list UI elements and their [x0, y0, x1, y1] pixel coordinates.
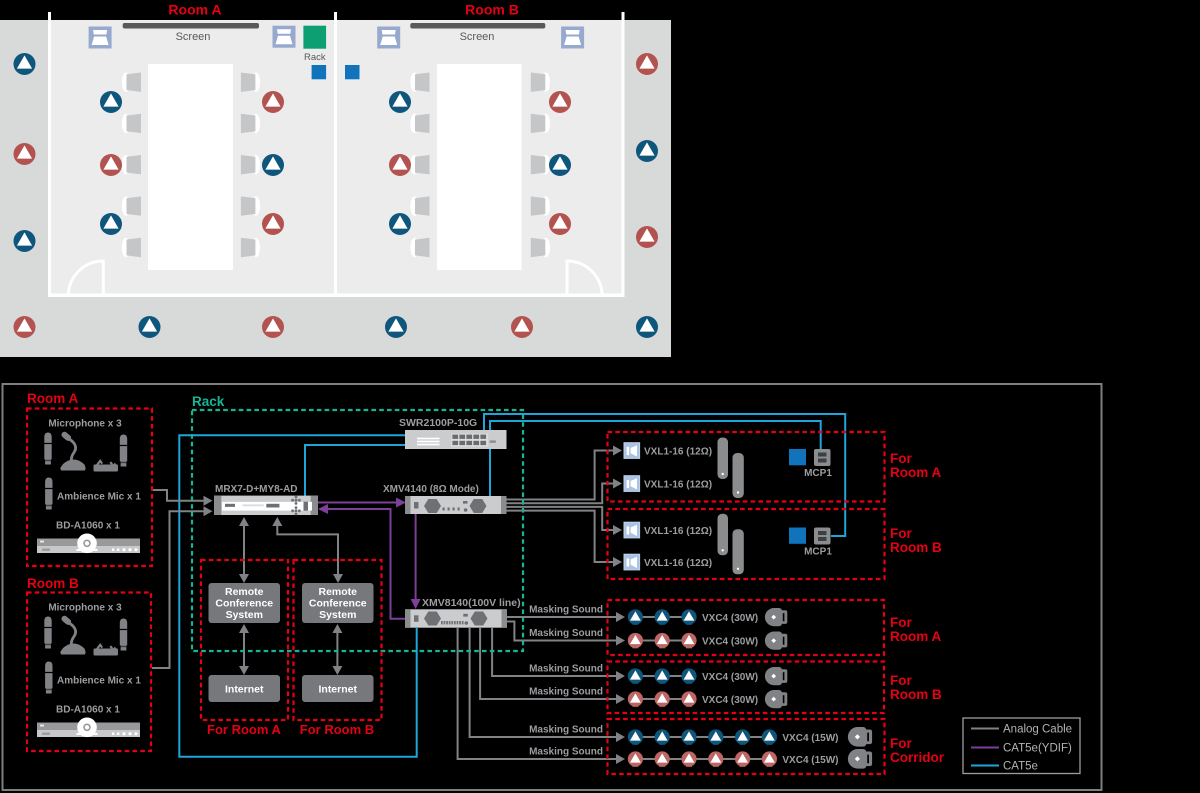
svg-text:VXC4 (15W): VXC4 (15W) [782, 733, 838, 744]
svg-text:Remote: Remote [225, 586, 264, 598]
svg-text:Room A: Room A [27, 391, 78, 406]
svg-text:MCP1: MCP1 [804, 468, 832, 479]
svg-text:MCP1: MCP1 [804, 547, 832, 558]
svg-text:Room A: Room A [890, 465, 941, 480]
svg-text:Masking Sound: Masking Sound [529, 687, 603, 698]
svg-text:VXC4 (30W): VXC4 (30W) [702, 613, 758, 624]
svg-text:Remote: Remote [318, 586, 357, 598]
svg-text:CAT5e: CAT5e [1003, 761, 1038, 773]
svg-text:Masking Sound: Masking Sound [529, 725, 603, 736]
svg-text:For Room B: For Room B [300, 722, 374, 737]
svg-text:MRX7-D+MY8-AD: MRX7-D+MY8-AD [215, 484, 298, 495]
svg-text:VXL1-16 (12Ω): VXL1-16 (12Ω) [644, 479, 712, 490]
svg-text:VXC4 (30W): VXC4 (30W) [702, 636, 758, 647]
svg-text:Masking Sound: Masking Sound [529, 664, 603, 675]
svg-text:Screen: Screen [460, 31, 495, 43]
svg-text:Room B: Room B [890, 687, 942, 702]
svg-text:Masking Sound: Masking Sound [529, 605, 603, 616]
svg-text:XMV8140(100V line): XMV8140(100V line) [422, 597, 521, 609]
svg-text:Microphone x 3: Microphone x 3 [48, 603, 122, 614]
svg-text:Room A: Room A [890, 629, 941, 644]
svg-text:For: For [890, 451, 912, 466]
svg-text:Internet: Internet [225, 684, 264, 696]
svg-text:Conference: Conference [215, 598, 273, 610]
svg-text:Room B: Room B [465, 2, 519, 18]
svg-text:For: For [890, 615, 912, 630]
svg-text:Rack: Rack [304, 52, 326, 63]
svg-text:VXC4 (30W): VXC4 (30W) [702, 695, 758, 706]
svg-text:Analog Cable: Analog Cable [1003, 724, 1072, 736]
svg-text:Ambience Mic x 1: Ambience Mic x 1 [57, 676, 141, 687]
svg-text:BD-A1060 x 1: BD-A1060 x 1 [56, 521, 120, 532]
svg-text:System: System [319, 609, 356, 621]
svg-text:Room B: Room B [890, 540, 942, 555]
svg-text:VXL1-16 (12Ω): VXL1-16 (12Ω) [644, 446, 712, 457]
svg-text:Masking Sound: Masking Sound [529, 747, 603, 758]
svg-text:Corridor: Corridor [890, 750, 945, 765]
svg-text:VXL1-16 (12Ω): VXL1-16 (12Ω) [644, 558, 712, 569]
svg-text:For: For [890, 736, 912, 751]
svg-text:SWR2100P-10G: SWR2100P-10G [399, 417, 477, 429]
svg-text:For: For [890, 526, 912, 541]
svg-text:XMV4140 (8Ω Mode): XMV4140 (8Ω Mode) [383, 484, 479, 495]
svg-text:Ambience Mic x 1: Ambience Mic x 1 [57, 492, 141, 503]
svg-text:Room A: Room A [168, 2, 221, 18]
svg-text:Conference: Conference [309, 598, 367, 610]
svg-text:VXC4 (15W): VXC4 (15W) [782, 755, 838, 766]
svg-text:For Room A: For Room A [207, 722, 282, 737]
svg-text:BD-A1060 x 1: BD-A1060 x 1 [56, 705, 120, 716]
svg-text:CAT5e(YDIF): CAT5e(YDIF) [1003, 743, 1072, 755]
svg-text:Microphone x 3: Microphone x 3 [48, 419, 122, 430]
svg-text:VXC4 (30W): VXC4 (30W) [702, 672, 758, 683]
svg-text:Room B: Room B [27, 576, 79, 591]
svg-text:For: For [890, 673, 912, 688]
svg-text:System: System [226, 609, 263, 621]
svg-text:Internet: Internet [318, 684, 357, 696]
svg-text:Masking Sound: Masking Sound [529, 628, 603, 639]
svg-text:VXL1-16 (12Ω): VXL1-16 (12Ω) [644, 526, 712, 537]
svg-text:Screen: Screen [176, 31, 211, 43]
svg-text:Rack: Rack [192, 394, 225, 409]
